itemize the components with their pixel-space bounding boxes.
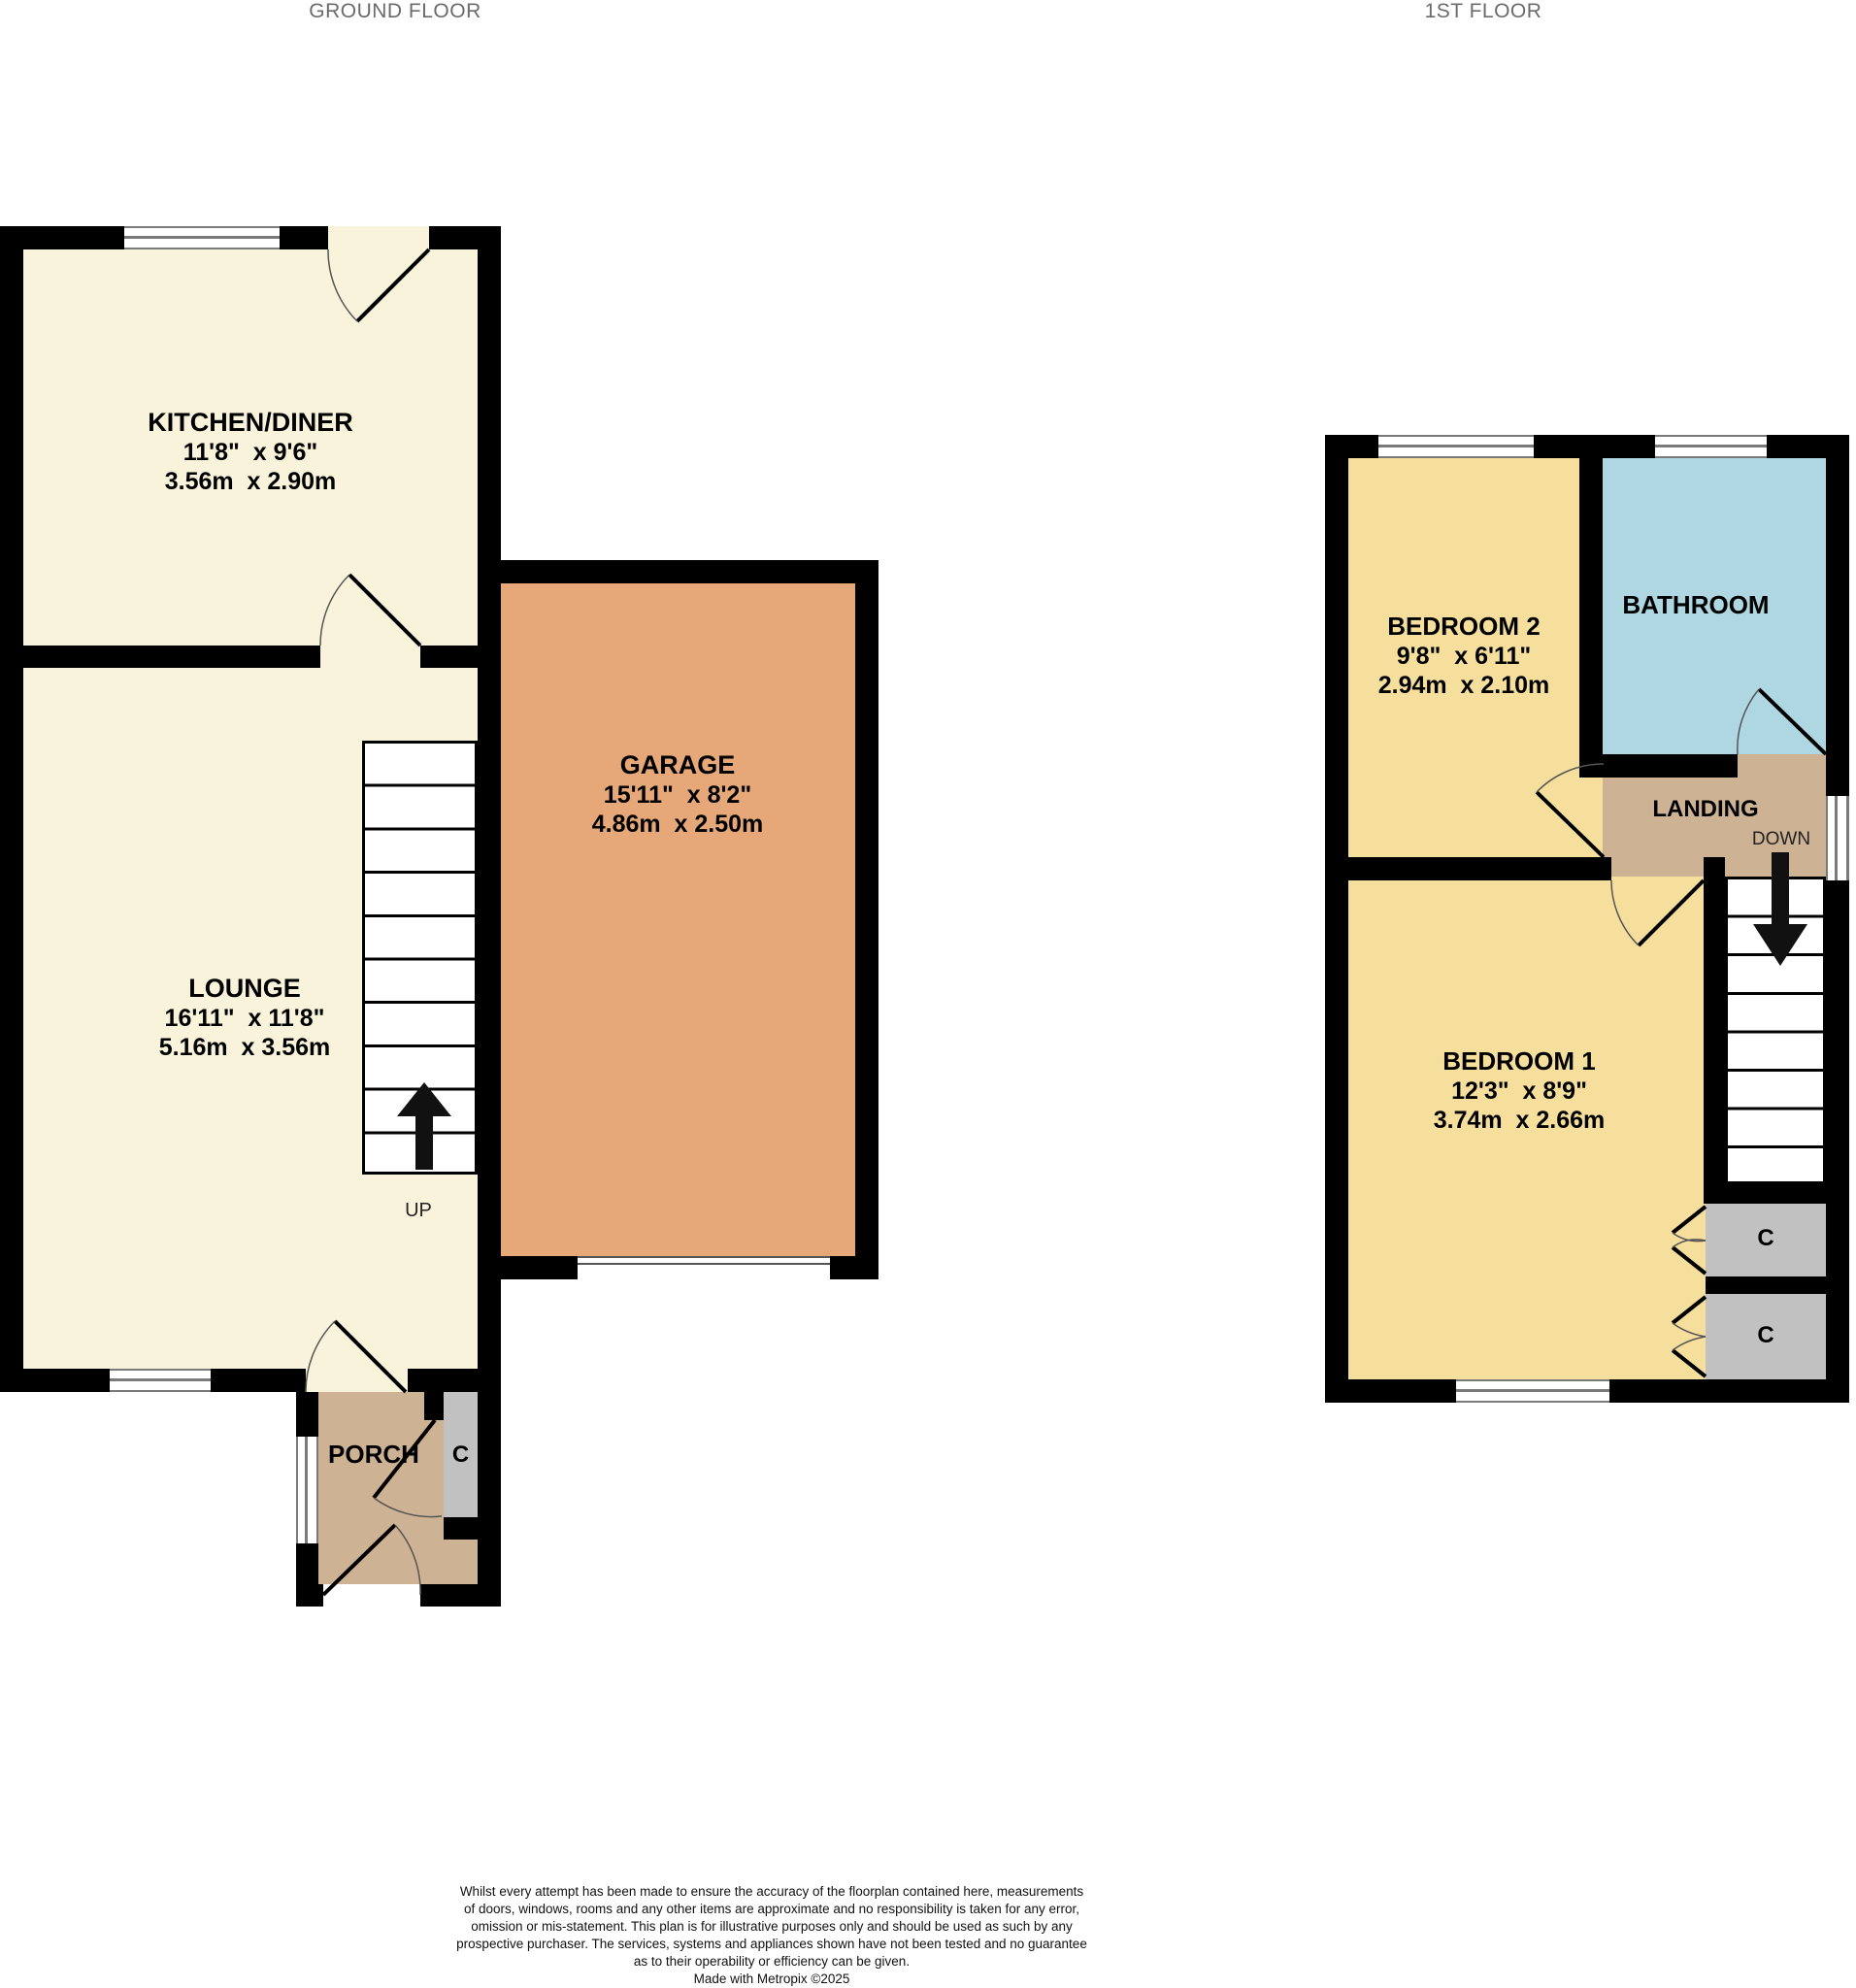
first-floor-title: 1ST FLOOR — [1192, 0, 1774, 23]
up-label: UP — [370, 1200, 467, 1222]
room-dims-imperial: 11'8" x 9'6" — [183, 438, 317, 467]
room-dims-metric: 3.56m x 2.90m — [165, 467, 337, 496]
disclaimer-line: Whilst every attempt has been made to en… — [286, 1883, 1257, 1901]
kitchen-window — [124, 226, 280, 249]
bedroom2-label: BEDROOM 2 9'8" x 6'11" 2.94m x 2.10m — [1318, 612, 1609, 700]
wall — [0, 1369, 110, 1392]
wall — [1325, 1379, 1456, 1403]
disclaimer-line: omission or mis-statement. This plan is … — [286, 1918, 1257, 1936]
disclaimer-line: of doors, windows, rooms and any other i… — [286, 1901, 1257, 1918]
lounge-window — [110, 1369, 211, 1392]
bedroom2-window — [1378, 435, 1534, 458]
garage-floor — [501, 583, 855, 1256]
ground-floor-title: GROUND FLOOR — [104, 0, 686, 23]
wall-porch-bottom — [296, 1584, 323, 1607]
wall-stairs-bottom — [1704, 1184, 1826, 1204]
wall-cupboard-stub — [424, 1392, 444, 1420]
kitchen-lounge-door-opening — [320, 646, 420, 668]
room-name: BEDROOM 1 — [1442, 1046, 1595, 1077]
wall-bathroom-bottom — [1603, 754, 1738, 778]
wall-cupboard-divider — [1706, 1276, 1826, 1294]
wall-cupboard-bottom — [444, 1517, 478, 1540]
cupboard1-label: C — [1706, 1225, 1826, 1252]
wall-garage-bottom — [830, 1256, 878, 1279]
room-dims-imperial: 15'11" x 8'2" — [604, 780, 751, 810]
wall-bedroom2-bedroom1 — [1348, 857, 1611, 880]
wall-left-exterior — [0, 249, 23, 1392]
lounge-porch-door-opening — [306, 1369, 408, 1392]
wall — [408, 1369, 501, 1392]
porch-label: PORCH — [301, 1440, 447, 1470]
lounge-label: LOUNGE 16'11" x 11'8" 5.16m x 3.56m — [50, 974, 439, 1062]
wall-garage-top — [501, 560, 878, 583]
room-name: LOUNGE — [188, 974, 301, 1004]
bathroom-label: BATHROOM — [1550, 590, 1841, 620]
wall — [1767, 435, 1849, 458]
room-dims-metric: 2.94m x 2.10m — [1378, 671, 1550, 700]
wall-stairs-left — [1704, 857, 1725, 1204]
room-name: BEDROOM 2 — [1387, 612, 1540, 642]
wall-garage-right — [855, 560, 878, 1279]
wall — [1534, 435, 1655, 458]
bedroom2-door-opening — [1579, 778, 1603, 857]
wall — [211, 1369, 306, 1392]
wall — [1325, 435, 1378, 458]
bedroom1-label: BEDROOM 1 12'3" x 8'9" 3.74m x 2.66m — [1374, 1046, 1665, 1135]
down-label: DOWN — [1723, 829, 1839, 850]
bathroom-window — [1655, 435, 1767, 458]
wall-left-exterior — [1325, 458, 1348, 1403]
wall-porch-bottom — [420, 1584, 501, 1607]
wall-garage-bottom — [501, 1256, 578, 1279]
room-dims-imperial: 9'8" x 6'11" — [1397, 642, 1531, 671]
disclaimer-made-with: Made with Metropix ©2025 — [286, 1971, 1257, 1988]
room-dims-imperial: 16'11" x 11'8" — [165, 1004, 325, 1033]
wall — [1609, 1379, 1849, 1403]
wall-right-exterior — [1826, 458, 1849, 796]
kitchen-door-opening — [328, 226, 429, 249]
wall-porch-left — [296, 1392, 318, 1437]
room-name: GARAGE — [620, 750, 736, 780]
wall — [0, 226, 124, 249]
room-name: KITCHEN/DINER — [148, 408, 353, 438]
room-dims-metric: 5.16m x 3.56m — [159, 1033, 331, 1062]
bedroom1-window — [1456, 1379, 1609, 1403]
room-dims-metric: 3.74m x 2.66m — [1434, 1106, 1606, 1135]
disclaimer: Whilst every attempt has been made to en… — [286, 1883, 1257, 1988]
landing-label: LANDING — [1603, 796, 1808, 823]
ground-cupboard-label: C — [444, 1441, 478, 1469]
wall-kitchen-lounge — [420, 646, 478, 668]
floorplan-canvas: GROUND FLOOR 1ST FLOOR — [0, 0, 1856, 1988]
wall-kitchen-lounge — [23, 646, 320, 668]
disclaimer-line: prospective purchaser. The services, sys… — [286, 1936, 1257, 1953]
garage-door — [578, 1256, 830, 1265]
disclaimer-line: as to their operability or efficiency ca… — [286, 1953, 1257, 1971]
garage-label: GARAGE 15'11" x 8'2" 4.86m x 2.50m — [532, 750, 823, 839]
staircase-down — [1725, 877, 1826, 1184]
bathroom-door-opening — [1738, 754, 1826, 778]
cupboard2-label: C — [1706, 1322, 1826, 1349]
room-dims-metric: 4.86m x 2.50m — [592, 810, 764, 839]
staircase-up — [362, 741, 478, 1175]
wall — [280, 226, 328, 249]
wall-right-shared — [478, 226, 501, 1607]
room-dims-imperial: 12'3" x 8'9" — [1451, 1077, 1587, 1106]
kitchen-label: KITCHEN/DINER 11'8" x 9'6" 3.56m x 2.90m — [56, 408, 445, 496]
wall-right-exterior — [1826, 880, 1849, 1379]
